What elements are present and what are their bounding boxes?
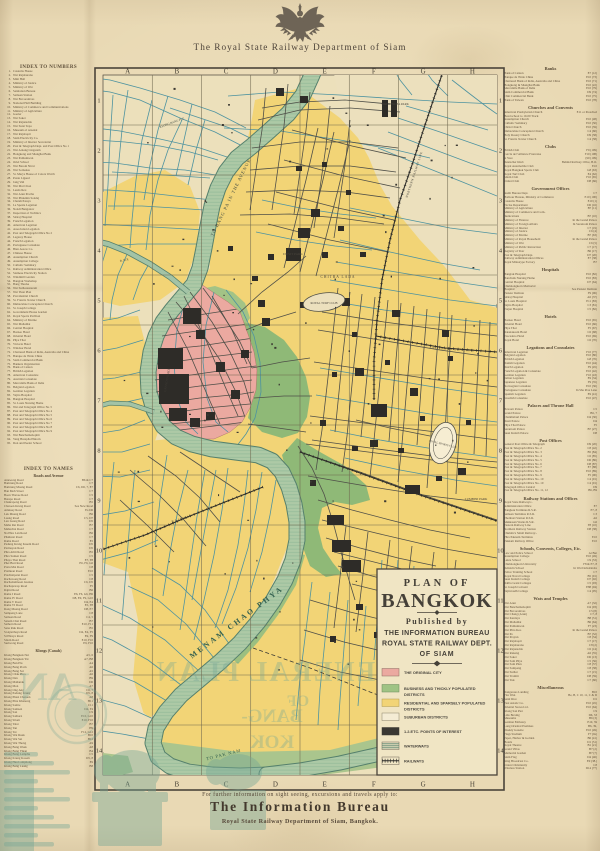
svg-text:1.2.ETC. POINTS OF INTEREST: 1.2.ETC. POINTS OF INTEREST <box>404 729 462 734</box>
svg-text:11: 11 <box>497 597 503 604</box>
svg-text:LUMBINI PARK: LUMBINI PARK <box>465 497 488 501</box>
svg-text:F: F <box>372 780 376 788</box>
svg-text:2: 2 <box>499 147 502 154</box>
svg-text:12: 12 <box>96 647 102 654</box>
svg-text:1: 1 <box>499 97 502 104</box>
svg-text:DISTRICTS: DISTRICTS <box>404 707 425 712</box>
svg-text:H: H <box>470 67 475 75</box>
svg-text:THE ORIGINAL CITY: THE ORIGINAL CITY <box>404 670 442 675</box>
svg-text:PLAN OF: PLAN OF <box>404 578 471 589</box>
svg-text:Published by: Published by <box>406 617 468 626</box>
svg-text:DUSIT PARK: DUSIT PARK <box>283 252 303 256</box>
svg-text:11: 11 <box>96 597 102 604</box>
svg-text:13: 13 <box>497 697 503 704</box>
svg-text:D: D <box>273 67 278 75</box>
svg-text:G: G <box>421 780 426 788</box>
svg-text:9: 9 <box>499 497 502 504</box>
svg-text:ROYAL TURF CLUB: ROYAL TURF CLUB <box>310 301 337 305</box>
svg-text:C: C <box>224 67 229 75</box>
svg-text:CHITRA LADA: CHITRA LADA <box>320 275 355 279</box>
svg-text:BUSINESS AND THICKLY POPULATED: BUSINESS AND THICKLY POPULATED <box>404 686 476 691</box>
svg-text:F: F <box>372 67 376 75</box>
svg-text:B: B <box>175 67 180 75</box>
svg-text:G: G <box>421 67 426 75</box>
svg-text:12: 12 <box>497 647 503 654</box>
svg-text:OF SIAM: OF SIAM <box>420 651 455 658</box>
svg-text:7: 7 <box>499 397 503 404</box>
svg-text:3: 3 <box>97 197 100 204</box>
svg-text:B: B <box>175 780 180 788</box>
svg-text:14: 14 <box>96 747 103 754</box>
svg-text:10: 10 <box>96 547 102 554</box>
svg-text:4: 4 <box>499 247 503 254</box>
svg-text:7: 7 <box>97 397 101 404</box>
svg-text:10: 10 <box>497 547 503 554</box>
svg-text:A: A <box>125 780 130 788</box>
svg-text:1: 1 <box>97 97 100 104</box>
svg-text:C: C <box>224 780 229 788</box>
svg-text:6: 6 <box>499 347 502 354</box>
svg-text:E: E <box>322 67 326 75</box>
svg-text:WAT BENCHA PARK: WAT BENCHA PARK <box>381 102 409 106</box>
svg-text:3: 3 <box>499 197 502 204</box>
svg-text:BANGKOK: BANGKOK <box>381 590 492 612</box>
svg-text:WATERWAYS: WATERWAYS <box>404 743 429 748</box>
svg-text:8: 8 <box>499 447 502 454</box>
svg-text:H: H <box>470 780 475 788</box>
svg-text:E: E <box>322 780 326 788</box>
svg-text:5: 5 <box>499 297 502 304</box>
svg-text:A: A <box>125 67 130 75</box>
svg-text:THE INFORMATION BUREAU: THE INFORMATION BUREAU <box>384 630 490 637</box>
svg-text:D: D <box>273 780 278 788</box>
svg-text:4: 4 <box>97 247 101 254</box>
svg-text:6: 6 <box>97 347 100 354</box>
svg-text:RESIDENTIAL AND SPARSELY POPUL: RESIDENTIAL AND SPARSELY POPULATED <box>404 700 486 705</box>
svg-text:DISTRICTS: DISTRICTS <box>404 692 425 697</box>
svg-text:14: 14 <box>497 747 504 754</box>
svg-text:13: 13 <box>96 697 102 704</box>
svg-text:SUBURBAN DISTRICTS: SUBURBAN DISTRICTS <box>404 714 448 719</box>
svg-text:9: 9 <box>97 497 100 504</box>
svg-text:5: 5 <box>97 297 100 304</box>
svg-text:ROYAL STATE RAILWAY DEPT.: ROYAL STATE RAILWAY DEPT. <box>382 641 492 648</box>
svg-text:2: 2 <box>97 147 100 154</box>
svg-text:8: 8 <box>97 447 100 454</box>
svg-text:RAILWAYS: RAILWAYS <box>404 758 424 763</box>
